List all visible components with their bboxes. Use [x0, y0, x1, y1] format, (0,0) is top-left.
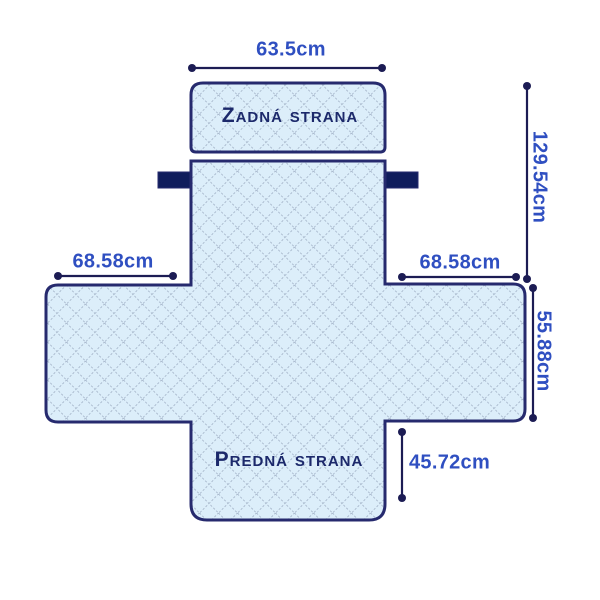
back-panel-label: Zadná strana	[222, 104, 359, 128]
dimension-label-front-drop: 45.72cm	[409, 452, 490, 475]
front-panel-label: Predná strana	[215, 448, 364, 472]
right-strap-tab	[385, 172, 418, 188]
dimension-label-top-width: 63.5cm	[256, 39, 326, 62]
dimension-line-top-width	[188, 64, 386, 72]
dimension-label-armrest-depth: 55.88cm	[532, 310, 555, 391]
dimension-label-left-armrest: 68.58cm	[72, 251, 153, 274]
dimension-line-front-drop	[398, 428, 406, 502]
diagram-canvas	[0, 0, 600, 600]
dimension-label-right-armrest: 68.58cm	[419, 252, 500, 275]
dimension-label-back-height: 129.54cm	[528, 131, 551, 223]
sofa-cover-diagram: 63.5cm 129.54cm 68.58cm 68.58cm 55.88cm …	[0, 0, 600, 600]
left-strap-tab	[158, 172, 191, 188]
